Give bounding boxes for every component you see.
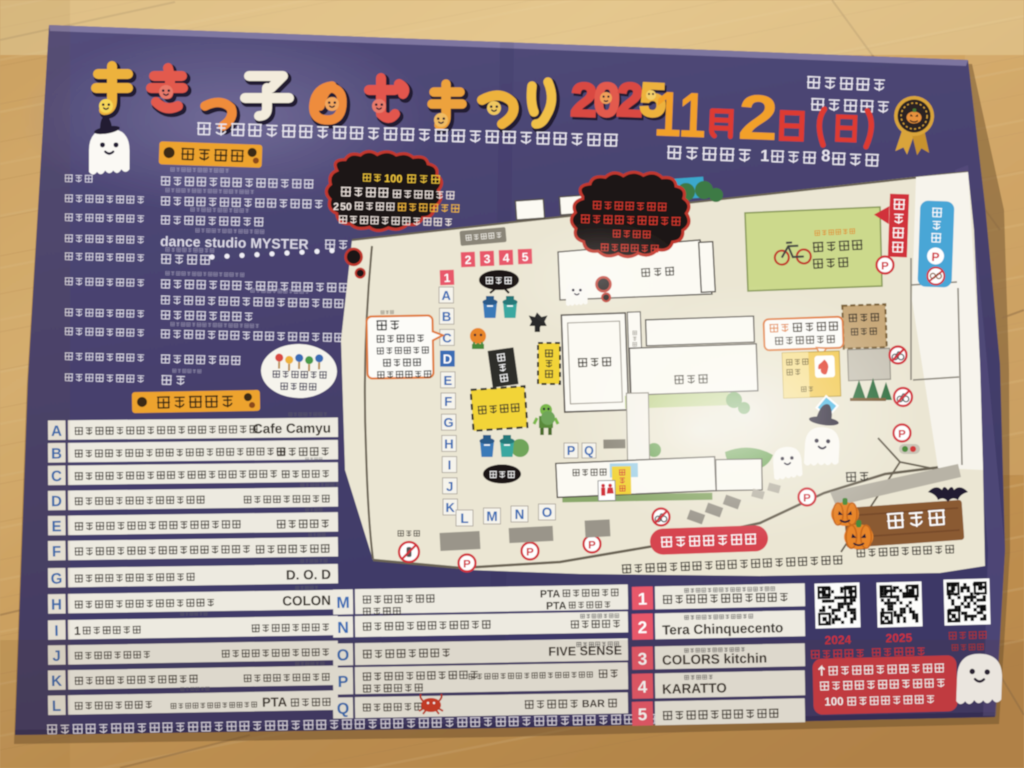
svg-text:P: P <box>931 250 939 264</box>
svg-text:COLON: COLON <box>282 593 331 609</box>
svg-text:8: 8 <box>821 147 831 165</box>
svg-text:1: 1 <box>74 624 81 638</box>
svg-text:1: 1 <box>760 147 770 165</box>
svg-text:Tera Chinquecento: Tera Chinquecento <box>662 620 784 638</box>
svg-text:PTA: PTA <box>546 600 567 612</box>
svg-text:N: N <box>337 620 349 637</box>
svg-text:C: C <box>442 330 452 345</box>
svg-text:P: P <box>526 546 534 558</box>
svg-text:1: 1 <box>443 271 450 285</box>
svg-text:M: M <box>486 509 497 524</box>
svg-text:A: A <box>442 288 452 303</box>
svg-text:P: P <box>881 260 889 272</box>
svg-text:O: O <box>542 505 553 520</box>
svg-text:N: N <box>515 507 525 522</box>
svg-text:1: 1 <box>638 590 648 609</box>
svg-text:11: 11 <box>653 78 708 152</box>
svg-text:P: P <box>567 444 575 458</box>
svg-text:E: E <box>443 373 452 388</box>
svg-text:D. O. D: D. O. D <box>286 567 331 583</box>
svg-text:P: P <box>588 539 596 551</box>
svg-text:J: J <box>446 479 453 494</box>
svg-text:2: 2 <box>638 618 648 637</box>
svg-text:50: 50 <box>340 201 352 213</box>
svg-text:2: 2 <box>737 81 780 154</box>
svg-text:M: M <box>336 595 350 612</box>
svg-text:P: P <box>463 558 471 570</box>
svg-text:G: G <box>444 415 454 430</box>
svg-text:100: 100 <box>384 173 403 185</box>
svg-text:B: B <box>442 309 451 324</box>
svg-text:2: 2 <box>464 253 471 267</box>
svg-text:F: F <box>444 394 452 409</box>
svg-text:H: H <box>444 436 453 451</box>
svg-text:PTA: PTA <box>540 588 561 600</box>
svg-text:Cafe Camyu: Cafe Camyu <box>253 421 331 437</box>
svg-text:2: 2 <box>333 201 339 213</box>
svg-text:I: I <box>448 458 452 473</box>
svg-text:D: D <box>443 352 452 367</box>
svg-text:L: L <box>460 511 468 526</box>
svg-text:3: 3 <box>483 252 490 266</box>
svg-text:4: 4 <box>502 251 509 265</box>
svg-text:K: K <box>446 500 456 515</box>
